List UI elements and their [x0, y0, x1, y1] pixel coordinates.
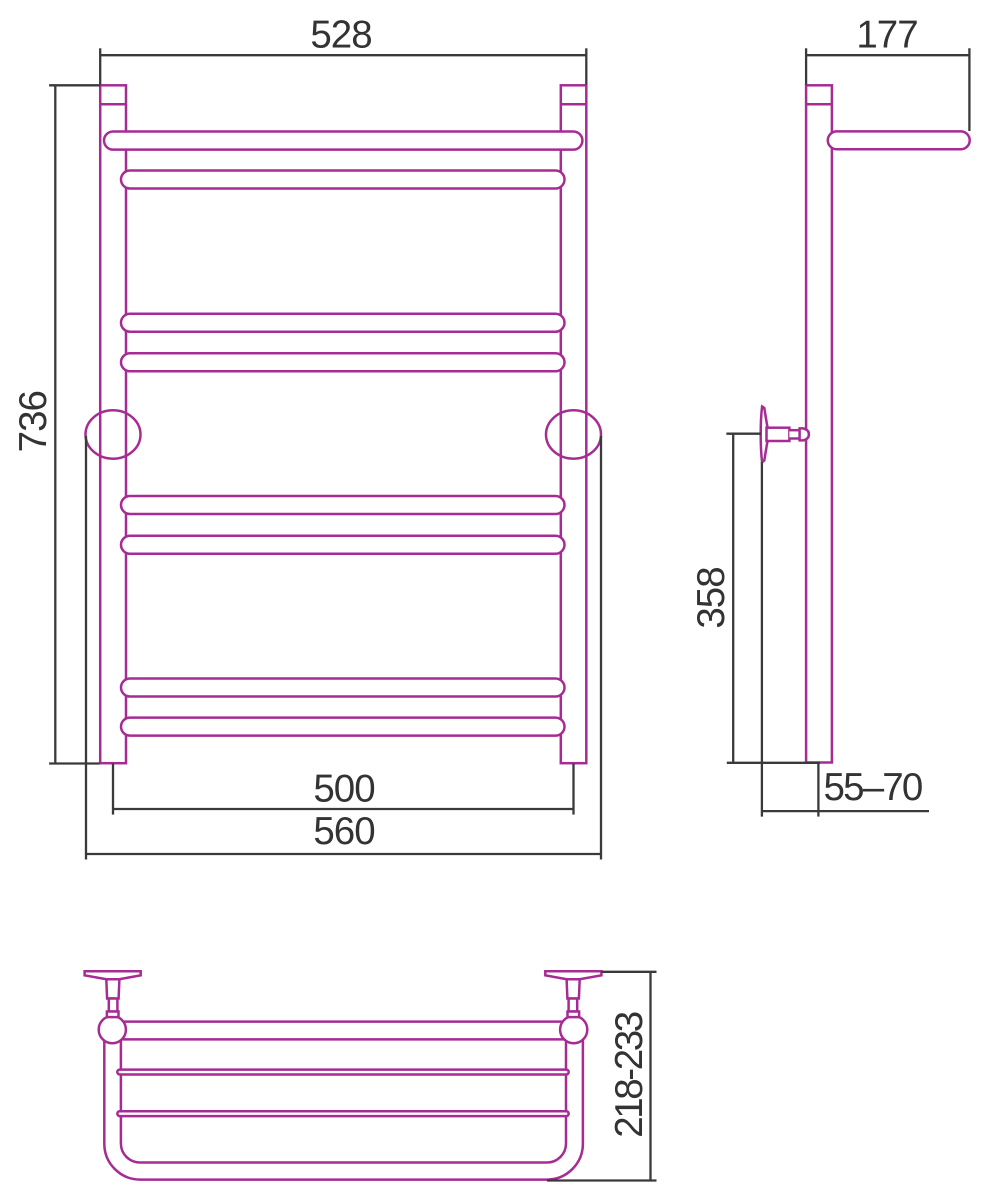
svg-text:358: 358 — [690, 567, 733, 628]
svg-text:500: 500 — [313, 768, 374, 811]
svg-text:528: 528 — [310, 14, 371, 57]
svg-text:177: 177 — [856, 14, 917, 57]
svg-text:218-233: 218-233 — [608, 1012, 651, 1137]
svg-text:55–70: 55–70 — [823, 766, 921, 809]
svg-text:736: 736 — [12, 391, 55, 452]
svg-text:560: 560 — [313, 810, 374, 853]
